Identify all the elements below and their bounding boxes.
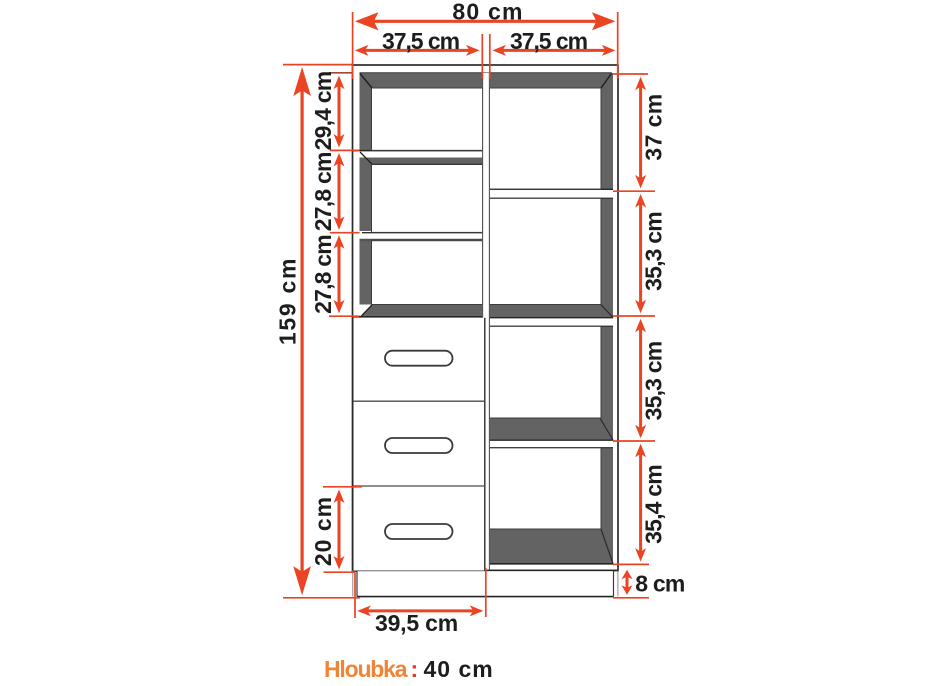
svg-text:80 cm: 80 cm	[452, 0, 523, 24]
svg-text:29,4 cm: 29,4 cm	[310, 71, 336, 150]
svg-text:37,5 cm: 37,5 cm	[510, 28, 588, 54]
svg-text:35,3 cm: 35,3 cm	[641, 341, 667, 420]
svg-text:8 cm: 8 cm	[635, 570, 685, 596]
svg-text:27,8 cm: 27,8 cm	[310, 152, 336, 231]
svg-text:39,5 cm: 39,5 cm	[375, 610, 458, 636]
svg-text:159 cm: 159 cm	[274, 257, 300, 345]
svg-text::: :	[411, 656, 419, 682]
svg-text:40 cm: 40 cm	[424, 656, 494, 682]
svg-text:35,3 cm: 35,3 cm	[641, 212, 667, 291]
svg-text:37 cm: 37 cm	[641, 93, 667, 160]
svg-text:20 cm: 20 cm	[310, 496, 336, 566]
svg-text:27,8 cm: 27,8 cm	[310, 235, 336, 314]
svg-text:37,5 cm: 37,5 cm	[382, 28, 460, 54]
svg-text:Hloubka: Hloubka	[324, 656, 408, 682]
svg-text:35,4 cm: 35,4 cm	[641, 465, 667, 544]
